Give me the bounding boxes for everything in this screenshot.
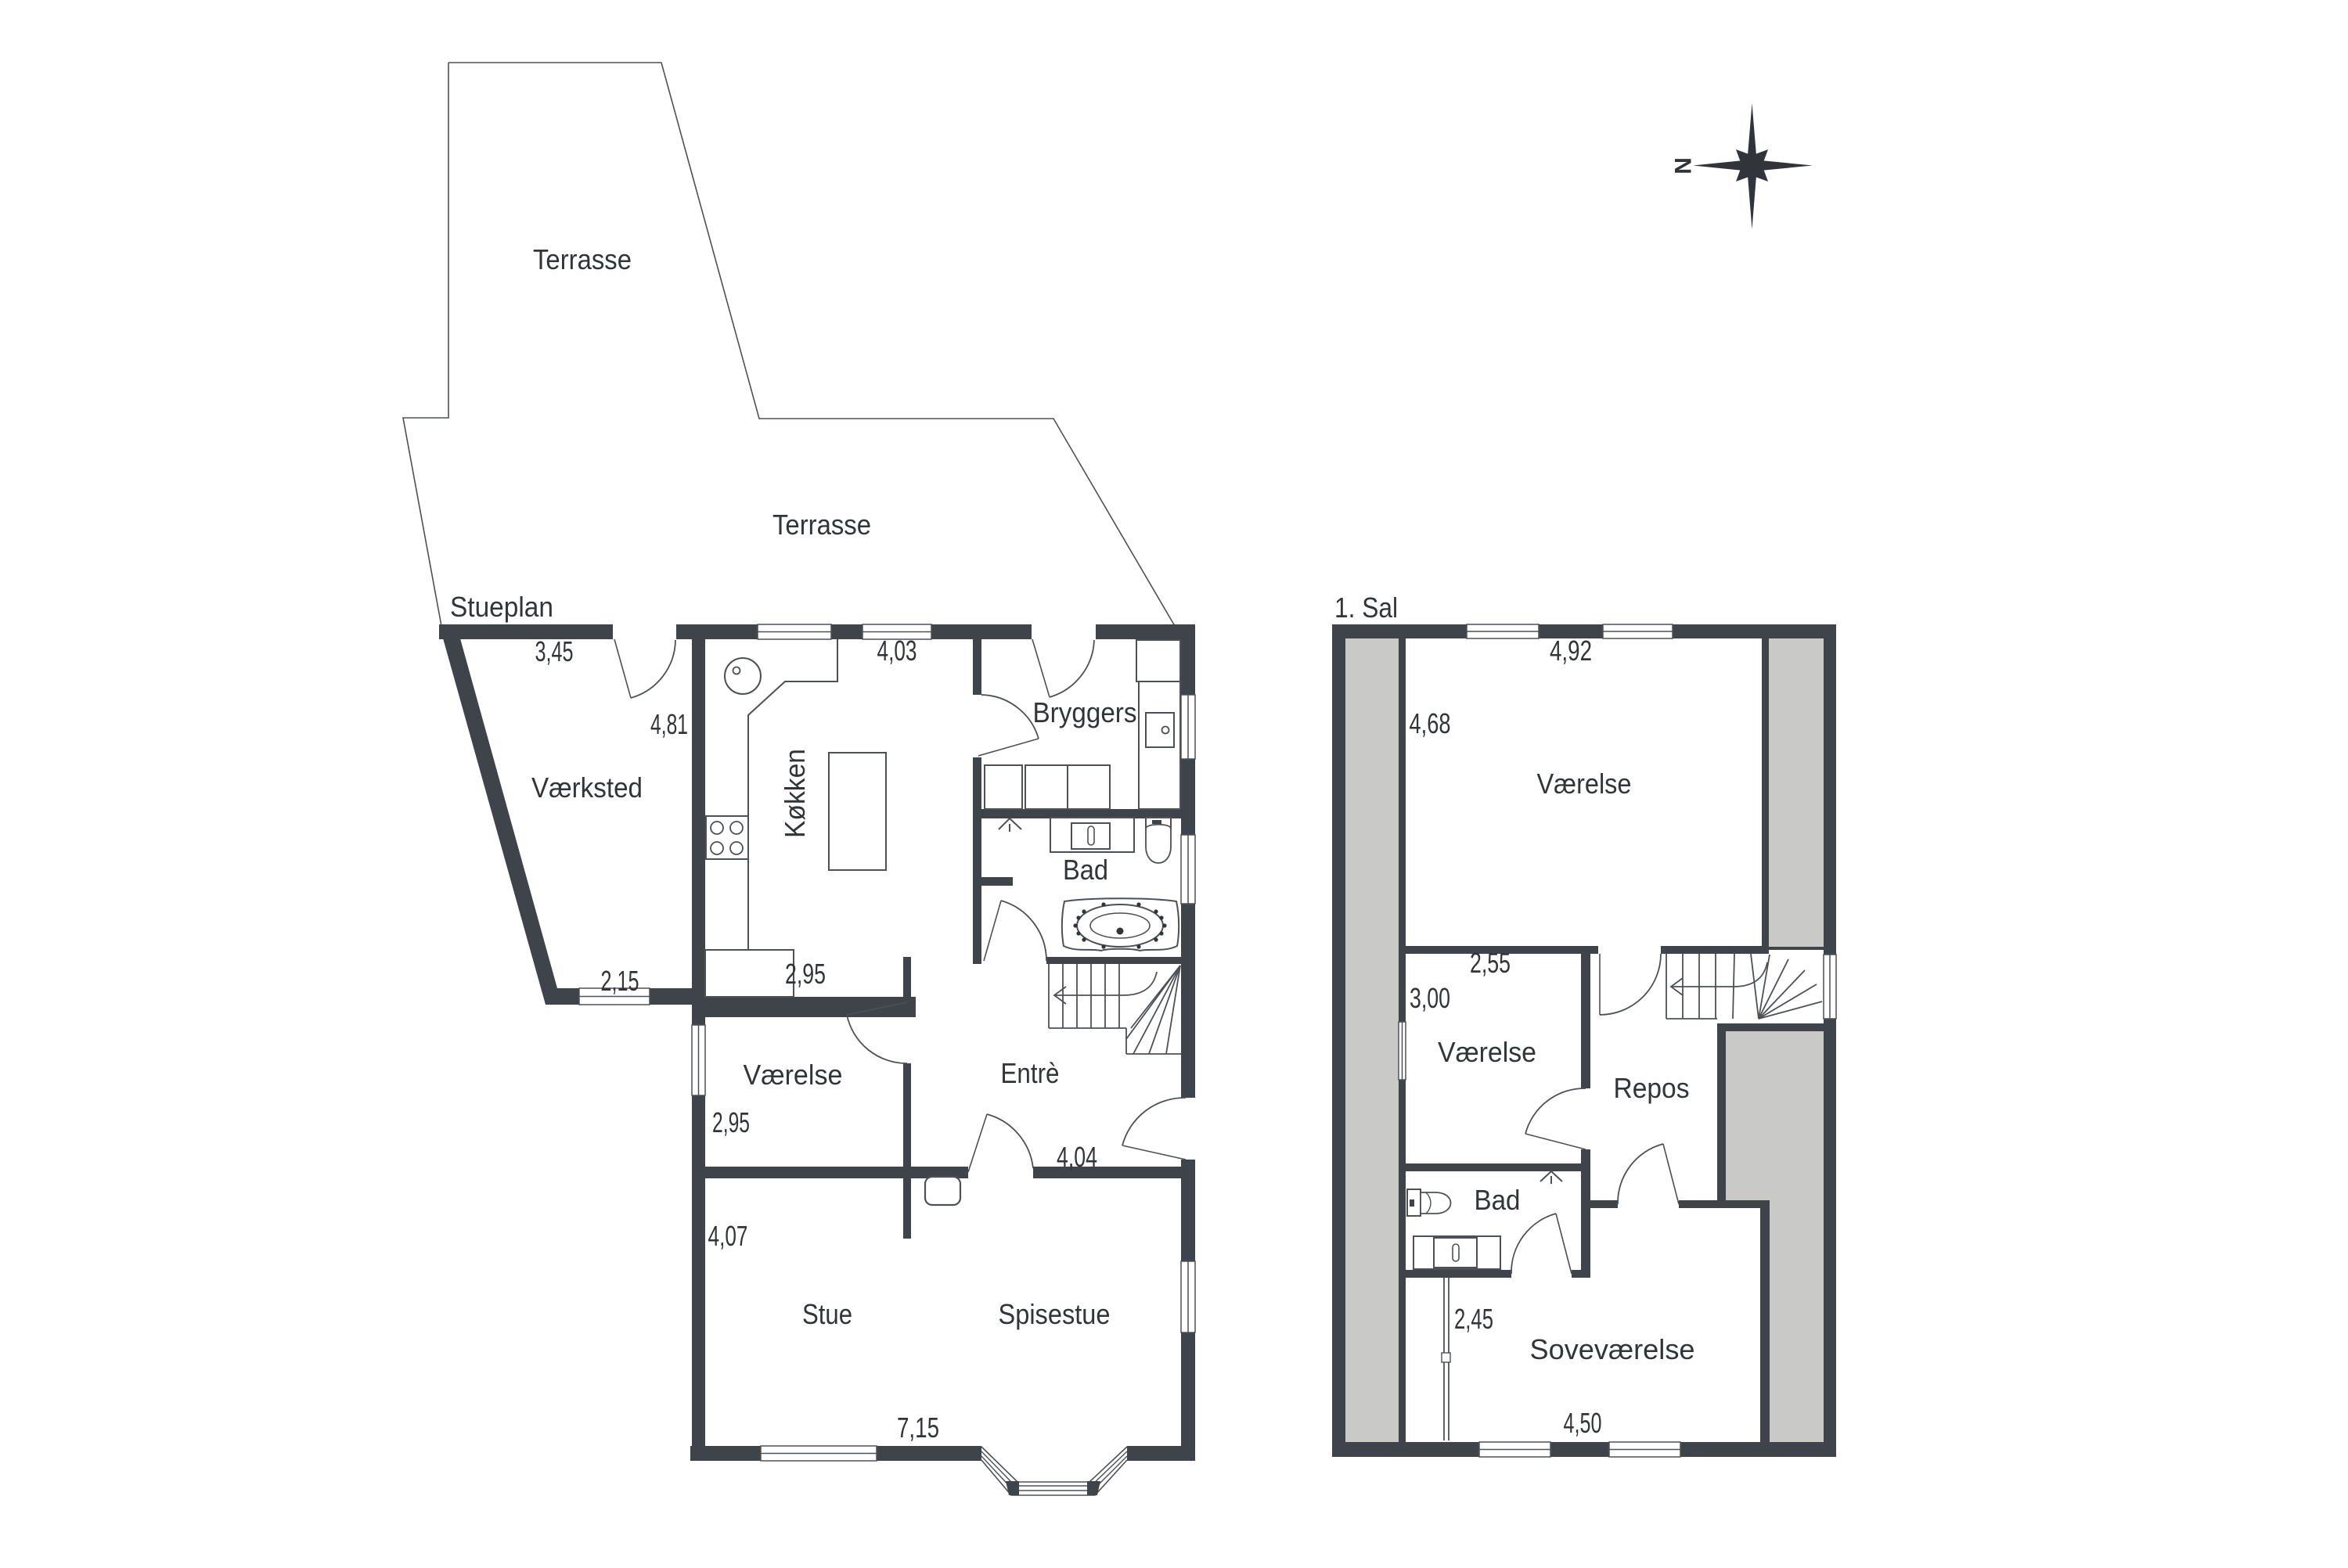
svg-text:Køkken: Køkken [779,749,811,838]
svg-text:2,95: 2,95 [785,958,826,990]
svg-text:4,04: 4,04 [1057,1141,1097,1173]
svg-text:4,07: 4,07 [708,1220,748,1252]
svg-text:Terrasse: Terrasse [772,509,871,541]
svg-text:2,55: 2,55 [1470,947,1511,979]
svg-text:4,50: 4,50 [1564,1407,1602,1439]
svg-text:Stue: Stue [802,1298,852,1330]
svg-text:4,92: 4,92 [1550,635,1592,667]
svg-text:Bad: Bad [1475,1184,1521,1216]
svg-text:2,15: 2,15 [601,965,639,997]
svg-text:Værelse: Værelse [744,1059,843,1091]
svg-text:Bryggers: Bryggers [1033,696,1137,728]
svg-text:2,45: 2,45 [1454,1303,1493,1335]
svg-text:3,00: 3,00 [1410,982,1450,1014]
svg-text:7,15: 7,15 [897,1412,939,1444]
svg-text:Repos: Repos [1614,1072,1690,1104]
svg-text:3,45: 3,45 [535,635,574,667]
svg-text:Bad: Bad [1063,854,1108,886]
svg-text:Stueplan: Stueplan [450,591,553,623]
svg-text:Værksted: Værksted [531,771,643,804]
svg-text:N: N [1669,157,1695,174]
svg-text:Spisestue: Spisestue [999,1298,1111,1330]
svg-text:4,81: 4,81 [650,708,688,740]
svg-text:4,68: 4,68 [1410,707,1451,739]
svg-text:Terrasse: Terrasse [533,243,632,275]
svg-text:Værelse: Værelse [1438,1036,1536,1068]
svg-text:1. Sal: 1. Sal [1334,592,1398,624]
svg-text:Værelse: Værelse [1537,768,1632,800]
svg-text:2,95: 2,95 [712,1106,750,1138]
svg-text:Soveværelse: Soveværelse [1530,1333,1695,1365]
svg-text:Entrè: Entrè [1001,1057,1060,1089]
svg-text:4,03: 4,03 [877,635,917,667]
